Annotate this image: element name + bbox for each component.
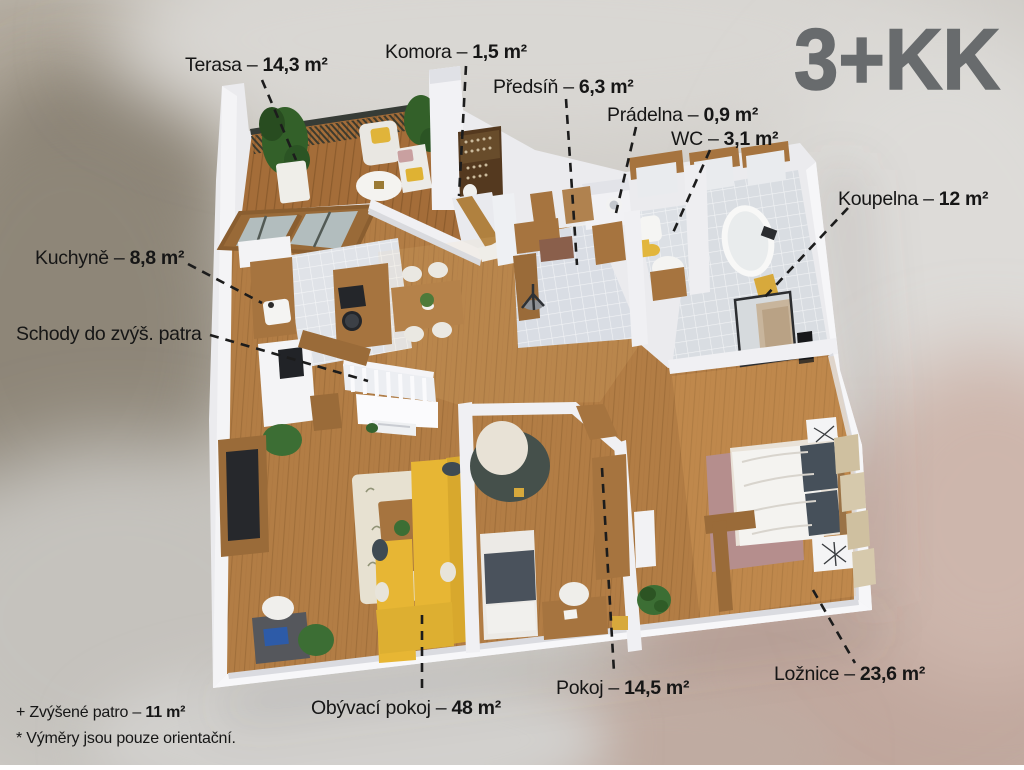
svg-text:WC – 3,1 m²: WC – 3,1 m² [671, 128, 779, 150]
svg-text:Komora – 1,5 m²: Komora – 1,5 m² [385, 41, 528, 63]
svg-text:Pokoj – 14,5 m²: Pokoj – 14,5 m² [556, 677, 690, 699]
svg-text:Schody do zvýš. patra: Schody do zvýš. patra [16, 323, 202, 345]
svg-text:3+KK: 3+KK [794, 12, 1000, 108]
svg-text:Obývací pokoj – 48 m²: Obývací pokoj – 48 m² [311, 697, 502, 719]
svg-text:Koupelna – 12 m²: Koupelna – 12 m² [838, 188, 989, 210]
svg-text:+ Zvýšené patro – 11 m²: + Zvýšené patro – 11 m² [16, 704, 185, 721]
svg-text:Předsíň – 6,3 m²: Předsíň – 6,3 m² [493, 76, 634, 98]
svg-text:Terasa – 14,3 m²: Terasa – 14,3 m² [185, 54, 328, 76]
svg-text:* Výměry jsou pouze orientační: * Výměry jsou pouze orientační. [16, 730, 236, 747]
svg-text:Ložnice – 23,6 m²: Ložnice – 23,6 m² [774, 663, 926, 685]
svg-text:Kuchyně – 8,8 m²: Kuchyně – 8,8 m² [35, 247, 185, 269]
svg-text:Prádelna – 0,9 m²: Prádelna – 0,9 m² [607, 104, 759, 126]
